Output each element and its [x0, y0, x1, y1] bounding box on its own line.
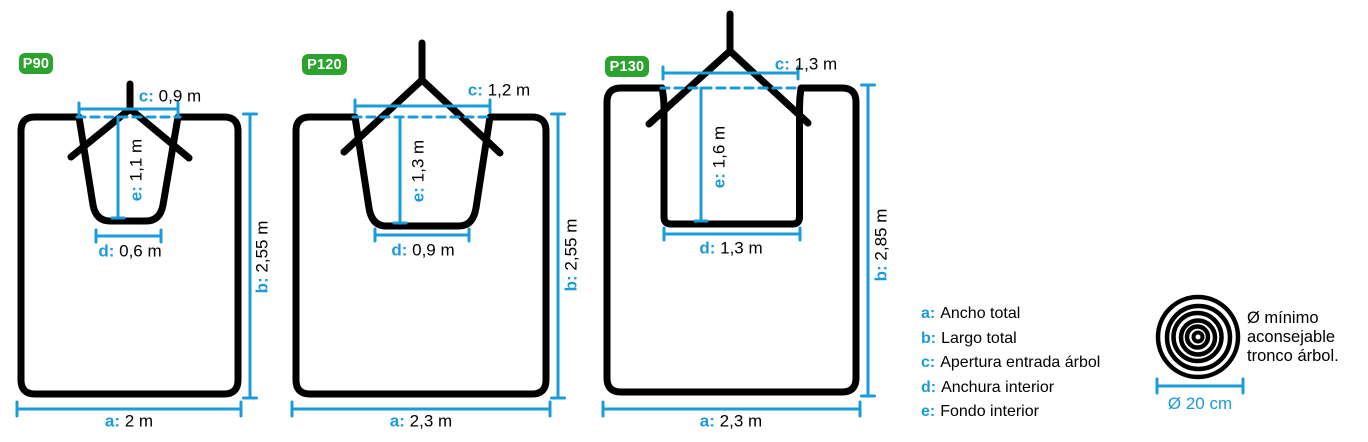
p130-dim-c-label: c: 1,3 m: [775, 56, 837, 73]
p90-dim-b-label: b: 2,55 m: [254, 221, 271, 294]
p120-dim-d-letter: d:: [391, 241, 407, 260]
p90-dim-a-letter: a:: [105, 412, 120, 431]
p120-dim-b-letter: b:: [562, 275, 581, 291]
p120-dim-b-value: 2,55 m: [562, 219, 581, 271]
legend-item-b: b: Largo total: [921, 327, 1100, 352]
p90-dim-d-letter: d:: [98, 242, 114, 261]
p120-dim-d-label: d: 0,9 m: [391, 242, 454, 259]
trunk-note-line2: aconsejable: [1247, 328, 1339, 347]
legend-a-letter: a:: [921, 305, 935, 323]
p120-dim-d-value: 0,9 m: [412, 241, 455, 260]
p90-dim-e-letter: e:: [127, 186, 146, 201]
p130-dim-a-value: 2,3 m: [720, 412, 763, 431]
model-badge-p120: P120: [302, 54, 347, 75]
p120-dim-e-label: e: 1,3 m: [410, 140, 427, 202]
legend-d-letter: d:: [921, 379, 936, 397]
trunk-diameter-label: Ø 20 cm: [1168, 394, 1232, 414]
p120-dim-a-label: a: 2,3 m: [390, 413, 452, 430]
p120-dim-e-letter: e:: [409, 187, 428, 202]
dimension-legend: a: Ancho total b: Largo total c: Apertur…: [921, 302, 1100, 425]
p90-dim-d-line: [96, 230, 161, 242]
p90-dim-e-value: 1,1 m: [127, 139, 146, 182]
p130-dim-d-value: 1,3 m: [720, 239, 763, 258]
p120-dim-b-label: b: 2,55 m: [563, 219, 580, 292]
p90-dim-e-label: e: 1,1 m: [128, 139, 145, 201]
p130-dim-a-letter: a:: [700, 412, 715, 431]
legend-b-letter: b:: [921, 330, 936, 348]
legend-e-letter: e:: [921, 403, 935, 421]
p120-dim-a-value: 2,3 m: [410, 412, 453, 431]
p130-dim-b-value: 2,85 m: [872, 209, 891, 261]
legend-item-e: e: Fondo interior: [921, 400, 1100, 425]
p90-dim-d-label: d: 0,6 m: [98, 243, 161, 260]
p90-dim-b-letter: b:: [253, 277, 272, 293]
legend-c-text: Apertura entrada árbol: [940, 354, 1100, 372]
p130-dim-e-label: e: 1,6 m: [711, 126, 728, 188]
p130-dim-d-letter: d:: [699, 239, 715, 258]
p90-dim-c-letter: c:: [139, 87, 154, 106]
p130-dim-e-line: [695, 88, 707, 221]
diagram-graphics: [0, 0, 1368, 442]
p120-dim-e-line: [394, 117, 406, 223]
p90-dim-a-label: a: 2 m: [105, 413, 153, 430]
p120-dim-c-line: [355, 100, 490, 112]
p90-dim-b-value: 2,55 m: [253, 221, 272, 273]
p120-dim-c-value: 1,2 m: [488, 81, 531, 100]
legend-item-d: d: Anchura interior: [921, 376, 1100, 401]
p130-dim-a-label: a: 2,3 m: [700, 413, 762, 430]
legend-item-a: a: Ancho total: [921, 302, 1100, 327]
legend-a-text: Ancho total: [940, 305, 1020, 323]
p120-dim-a-letter: a:: [390, 412, 405, 431]
p120-dim-d-line: [375, 229, 469, 241]
p130-dim-c-value: 1,3 m: [795, 55, 838, 74]
p90-dim-c-label: c: 0,9 m: [139, 88, 201, 105]
trunk-note-line3: tronco árbol.: [1247, 347, 1339, 366]
p130-dim-b-letter: b:: [872, 265, 891, 281]
p90-dim-a-value: 2 m: [125, 412, 153, 431]
tree-transplanter-dimensions-diagram: P90 P120 P130 c: 0,9 m e: 1,1 m d: 0,6 m…: [0, 0, 1368, 442]
model-badge-p130: P130: [605, 56, 649, 77]
p90-dim-c-value: 0,9 m: [159, 87, 202, 106]
p130-dim-e-letter: e:: [710, 173, 729, 188]
p130-dim-d-label: d: 1,3 m: [699, 240, 762, 257]
p90-dim-d-value: 0,6 m: [119, 242, 162, 261]
model-badge-p90: P90: [19, 53, 53, 74]
legend-item-c: c: Apertura entrada árbol: [921, 351, 1100, 376]
legend-e-text: Fondo interior: [940, 403, 1039, 421]
legend-d-text: Anchura interior: [941, 379, 1054, 397]
p130-dim-e-value: 1,6 m: [710, 126, 729, 169]
legend-c-letter: c:: [921, 354, 935, 372]
p130-dim-b-label: b: 2,85 m: [873, 209, 890, 282]
p120-dim-e-value: 1,3 m: [409, 140, 428, 183]
p120-dim-c-letter: c:: [468, 81, 483, 100]
trunk-min-diameter-note: Ø mínimo aconsejable tronco árbol.: [1247, 309, 1339, 366]
legend-b-text: Largo total: [941, 330, 1017, 348]
p120-dim-c-label: c: 1,2 m: [468, 82, 530, 99]
tree-rings-icon: [1158, 297, 1238, 377]
trunk-diameter-line: [1157, 379, 1243, 393]
p130-dim-c-letter: c:: [775, 55, 790, 74]
p90-dim-e-line: [112, 117, 124, 218]
trunk-note-line1: Ø mínimo: [1247, 309, 1339, 328]
